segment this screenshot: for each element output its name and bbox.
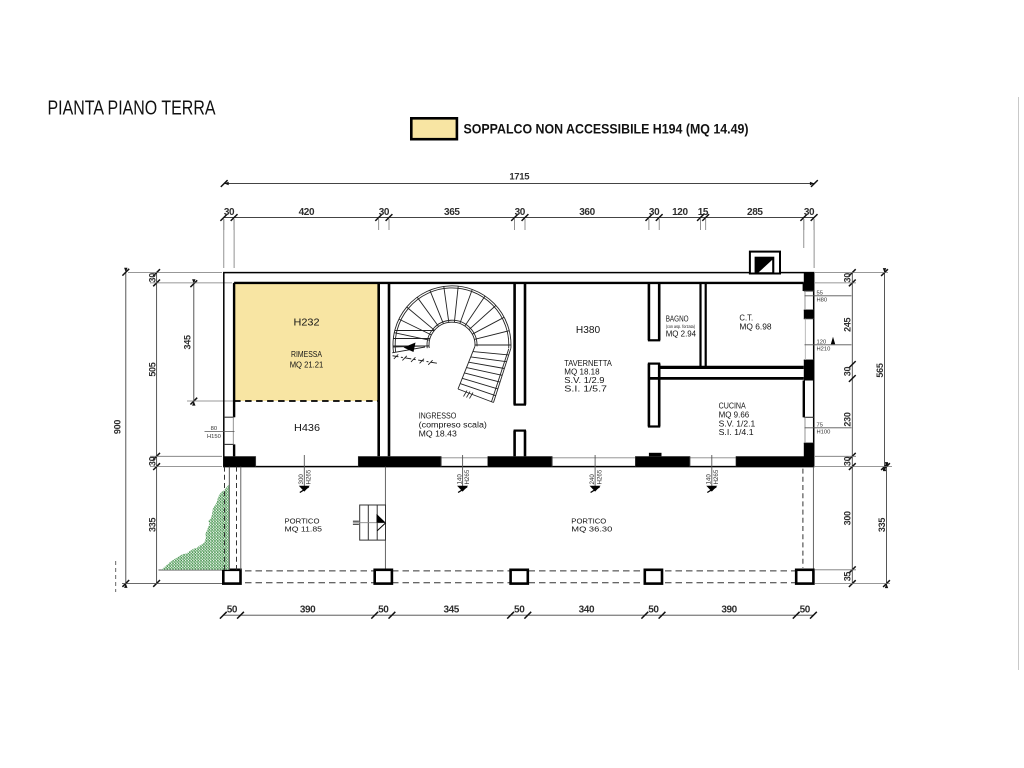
svg-text:INGRESSO: INGRESSO (419, 412, 457, 421)
svg-text:140: 140 (706, 474, 713, 485)
svg-text:MQ 18.43: MQ 18.43 (419, 429, 458, 438)
svg-text:390: 390 (300, 605, 316, 616)
svg-text:30: 30 (147, 456, 157, 466)
svg-text:C.T.: C.T. (739, 314, 753, 323)
svg-text:30: 30 (224, 207, 235, 218)
svg-text:30: 30 (842, 367, 852, 377)
svg-text:1715: 1715 (509, 172, 530, 183)
svg-text:340: 340 (579, 605, 595, 616)
svg-text:H265: H265 (597, 469, 604, 484)
svg-text:MQ 21.21: MQ 21.21 (290, 361, 324, 370)
svg-text:35: 35 (842, 572, 852, 582)
svg-text:CUCINA: CUCINA (719, 402, 747, 411)
svg-text:15: 15 (698, 207, 709, 218)
svg-text:H210: H210 (817, 347, 831, 353)
svg-text:285: 285 (747, 207, 763, 218)
svg-text:H265: H265 (306, 469, 313, 484)
svg-text:300: 300 (298, 474, 305, 485)
svg-text:390: 390 (721, 605, 737, 616)
svg-text:300: 300 (842, 511, 852, 525)
svg-text:75: 75 (817, 423, 823, 429)
svg-text:H100: H100 (817, 430, 831, 436)
svg-text:H150: H150 (207, 434, 221, 440)
svg-text:50: 50 (800, 605, 811, 616)
svg-text:335: 335 (877, 518, 887, 532)
svg-text:900: 900 (113, 420, 123, 434)
svg-text:230: 230 (842, 412, 852, 426)
svg-text:335: 335 (147, 518, 157, 532)
svg-text:H436: H436 (294, 423, 320, 434)
svg-text:30: 30 (842, 273, 852, 283)
svg-text:30: 30 (804, 207, 815, 218)
svg-text:30: 30 (147, 273, 157, 283)
svg-text:55: 55 (817, 291, 823, 297)
svg-text:MQ 6.98: MQ 6.98 (739, 322, 772, 331)
svg-text:PIANTA PIANO TERRA: PIANTA PIANO TERRA (48, 98, 217, 120)
svg-text:S.I. 1/4.1: S.I. 1/4.1 (719, 428, 755, 437)
svg-text:MQ 2.94: MQ 2.94 (666, 329, 697, 338)
svg-text:H80: H80 (817, 298, 828, 304)
svg-text:345: 345 (443, 605, 459, 616)
svg-text:H232: H232 (294, 318, 320, 329)
svg-text:S.I. 1/5.7: S.I. 1/5.7 (564, 385, 607, 394)
svg-text:MQ 11.85: MQ 11.85 (285, 525, 323, 534)
svg-text:30: 30 (842, 456, 852, 466)
svg-text:50: 50 (648, 605, 659, 616)
svg-text:345: 345 (182, 335, 192, 349)
svg-text:(con asp. forzata): (con asp. forzata) (666, 324, 696, 329)
svg-text:140: 140 (456, 474, 463, 485)
svg-text:120: 120 (817, 340, 827, 346)
svg-text:120: 120 (672, 207, 688, 218)
svg-text:30: 30 (379, 207, 390, 218)
svg-text:RIMESSA: RIMESSA (291, 350, 323, 359)
svg-text:240: 240 (589, 474, 596, 485)
svg-text:S.V. 1/2.1: S.V. 1/2.1 (719, 419, 756, 428)
svg-text:(compreso scala): (compreso scala) (419, 421, 488, 430)
svg-text:565: 565 (875, 363, 885, 377)
svg-text:80: 80 (211, 426, 217, 432)
svg-text:MQ 9.66: MQ 9.66 (719, 411, 750, 420)
svg-text:SOPPALCO NON ACCESSIBILE H194: SOPPALCO NON ACCESSIBILE H194 (MQ 14.49) (464, 121, 749, 137)
svg-text:30: 30 (649, 207, 660, 218)
svg-text:50: 50 (227, 605, 238, 616)
svg-text:505: 505 (147, 362, 157, 376)
svg-text:365: 365 (444, 207, 460, 218)
svg-text:245: 245 (842, 317, 852, 331)
svg-text:H265: H265 (713, 469, 720, 484)
svg-text:420: 420 (299, 207, 315, 218)
svg-text:MQ 36.30: MQ 36.30 (571, 525, 612, 534)
svg-text:H265: H265 (464, 469, 471, 484)
svg-text:H380: H380 (576, 325, 601, 336)
svg-text:50: 50 (514, 605, 525, 616)
svg-text:360: 360 (579, 207, 595, 218)
svg-text:50: 50 (378, 605, 389, 616)
svg-text:BAGNO: BAGNO (666, 315, 689, 324)
svg-text:30: 30 (515, 207, 526, 218)
